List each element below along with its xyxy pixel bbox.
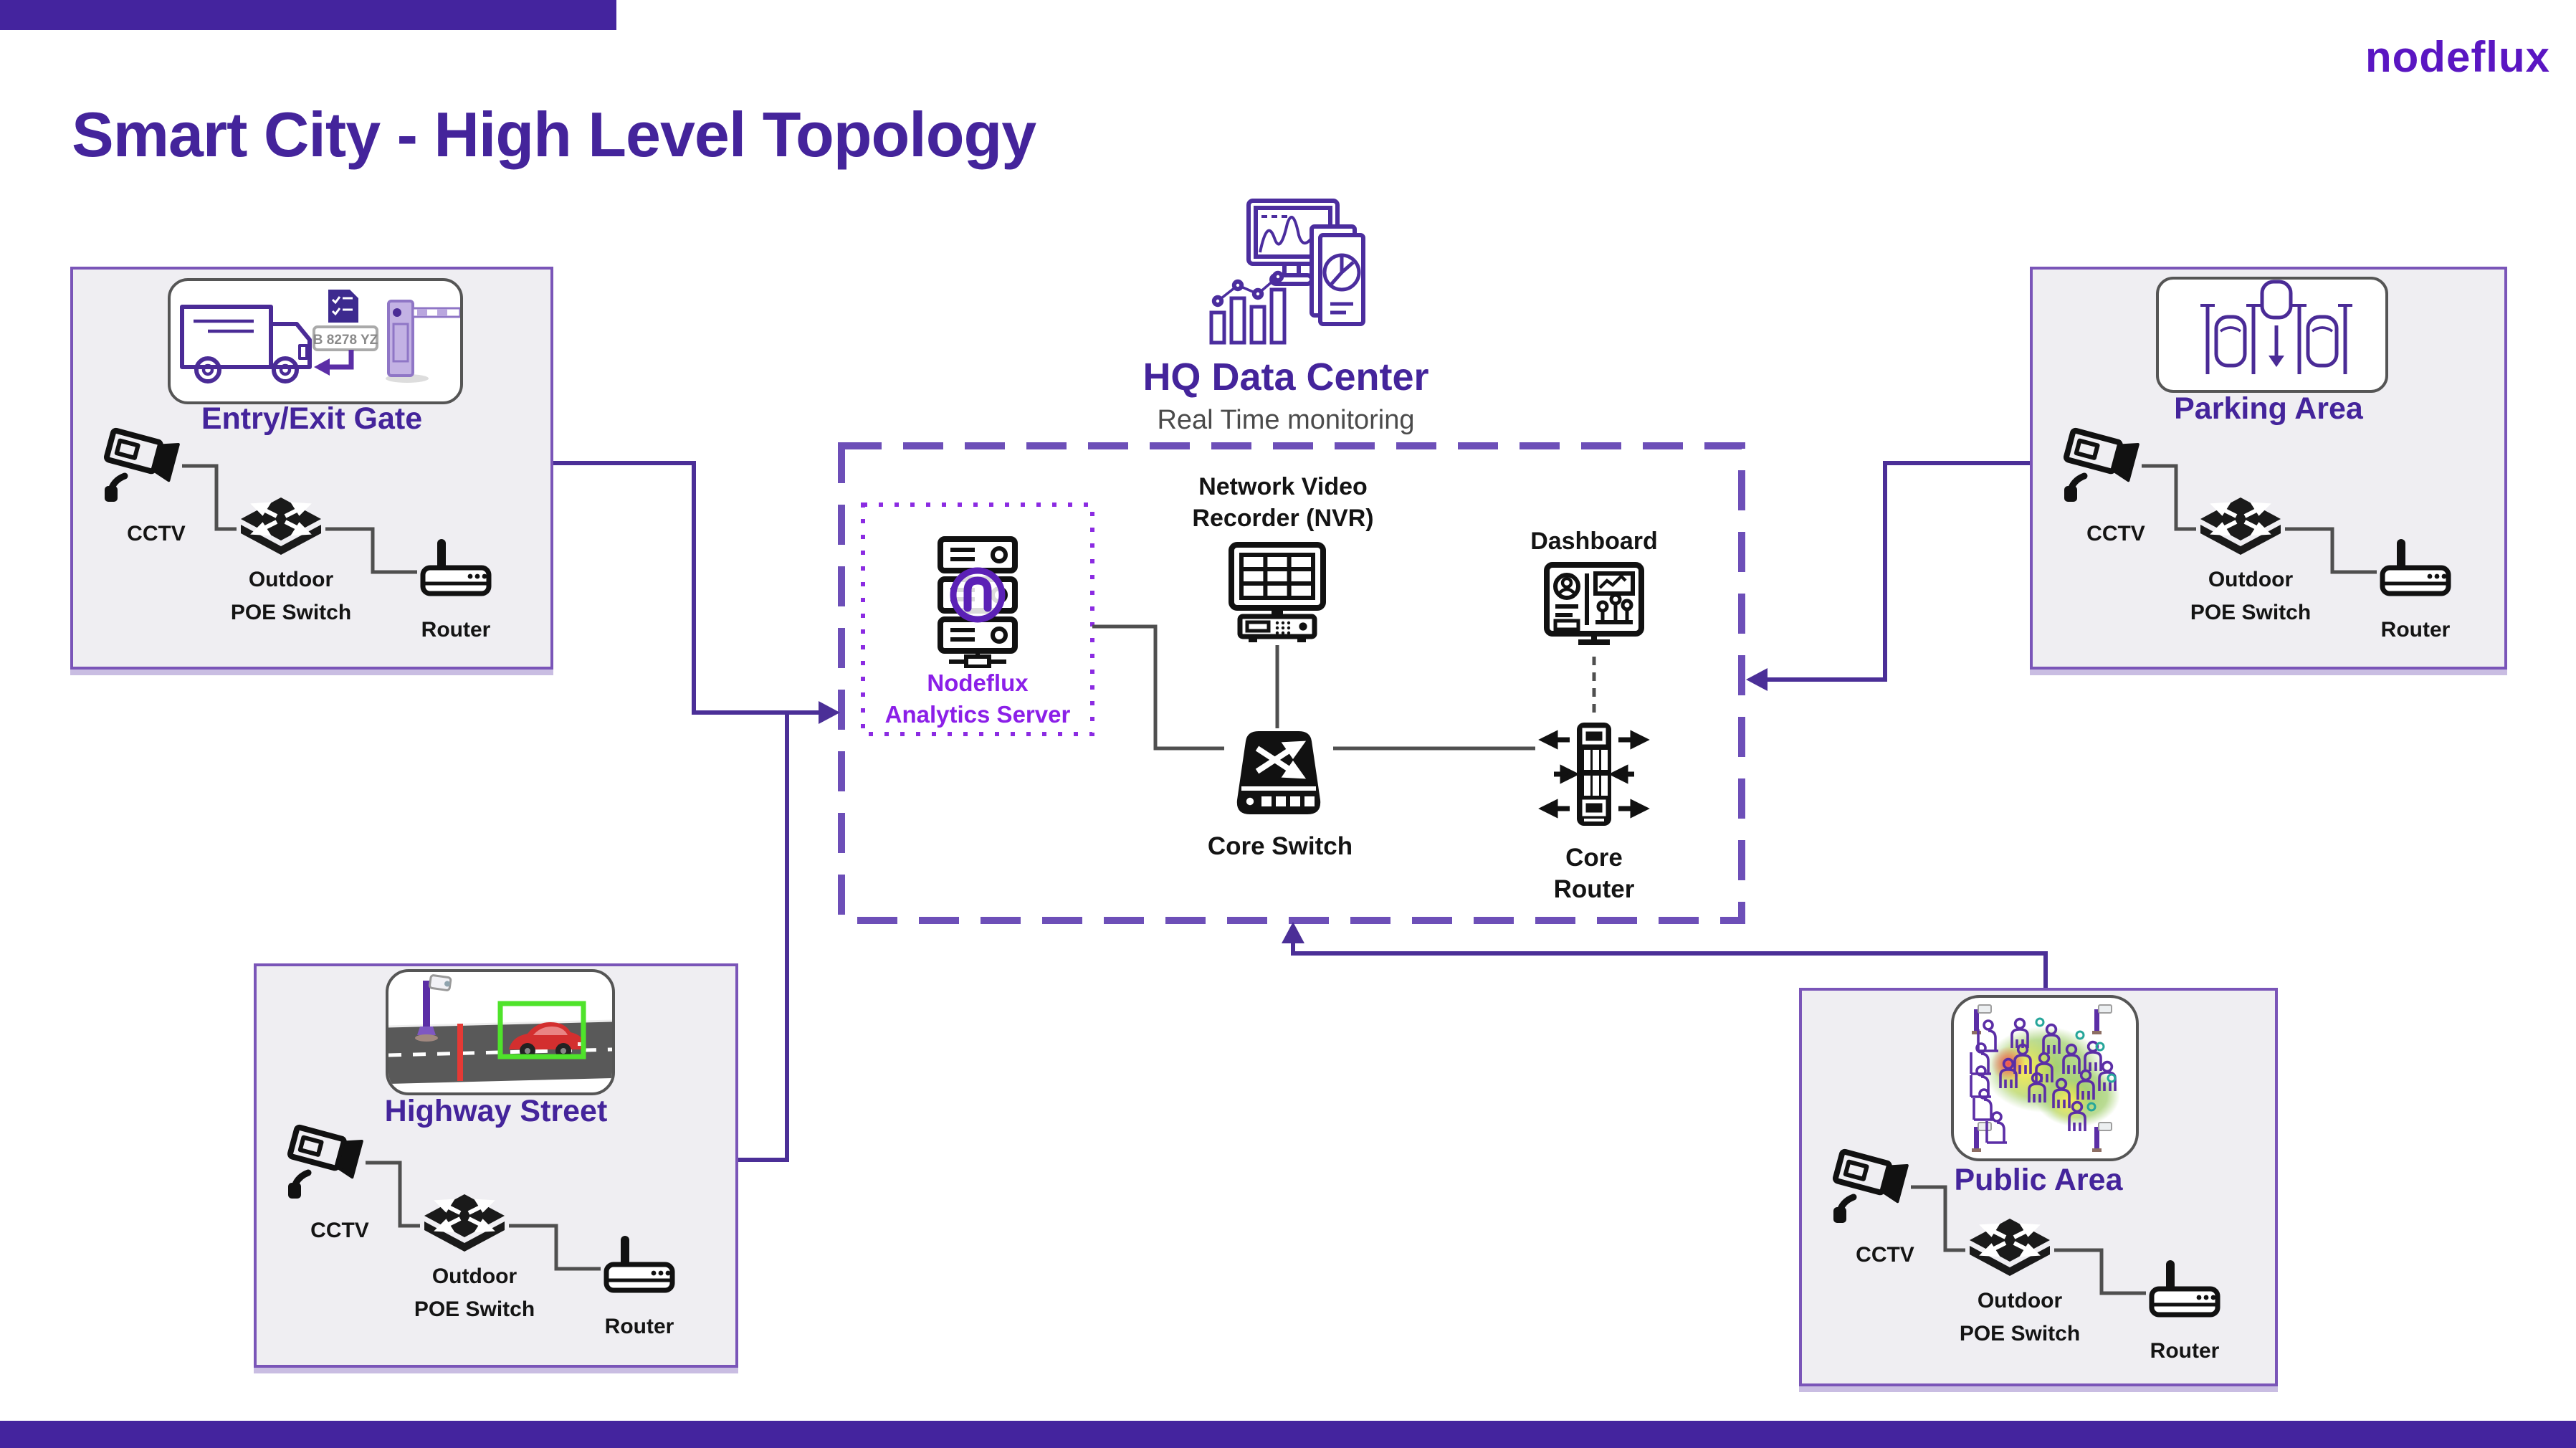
core-router-icon: [1538, 720, 1650, 829]
router-icon: [419, 538, 493, 601]
poe-switch-label-line2: POE Switch: [1919, 1322, 2120, 1346]
cctv-icon: [1831, 1148, 1914, 1223]
dashboard-label: Dashboard: [1479, 528, 1709, 556]
poe-switch-label-line2: POE Switch: [191, 601, 391, 625]
dashboard-icon: [1541, 562, 1647, 651]
router-label: Router: [399, 618, 513, 642]
nvr-label-line2: Recorder (NVR): [1125, 505, 1441, 533]
poe-switch-icon: [1967, 1217, 2053, 1283]
poe-switch-icon: [421, 1193, 507, 1259]
hq-data-center-icon: [1208, 198, 1366, 347]
cctv-label: CCTV: [99, 522, 214, 546]
site-parking-area: Parking Area CCTV Outdoor POE Switch Rou…: [2030, 267, 2507, 670]
site-highway-street: Highway Street CCTV Outdoor POE Switch R…: [254, 963, 738, 1368]
cctv-label: CCTV: [2059, 522, 2173, 546]
smart-city-topology: nodeflux Smart City - High Level Topolog…: [0, 0, 2576, 1448]
router-icon: [602, 1234, 677, 1297]
core-router-label-line2: Router: [1494, 875, 1694, 905]
poe-switch-label-line2: POE Switch: [374, 1297, 575, 1322]
cctv-label: CCTV: [282, 1219, 397, 1243]
router-icon: [2147, 1259, 2222, 1322]
analytics-server-label-line2: Analytics Server: [863, 702, 1092, 730]
nvr-icon: [1223, 542, 1332, 642]
hq-title: HQ Data Center: [1071, 356, 1501, 400]
router-label: Router: [2358, 618, 2473, 642]
site-title: Parking Area: [2033, 391, 2504, 427]
cctv-icon: [2061, 427, 2145, 502]
poe-switch-label-line2: POE Switch: [2150, 601, 2351, 625]
poe-switch-label-line1: Outdoor: [374, 1264, 575, 1289]
analytics-server-icon: [932, 536, 1024, 668]
public-area-illustration: [1951, 995, 2139, 1161]
license-plate-text: B 8278 YZ: [313, 333, 378, 348]
hq-internal-wires: [1092, 627, 1594, 748]
poe-switch-label-line1: Outdoor: [2150, 568, 2351, 592]
analytics-server-label-line1: Nodeflux: [863, 671, 1092, 698]
poe-switch-icon: [2198, 496, 2284, 562]
router-icon: [2378, 538, 2453, 601]
parking-illustration: [2156, 277, 2388, 393]
cctv-icon: [102, 427, 185, 502]
core-switch-label: Core Switch: [1180, 832, 1380, 862]
nvr-label-line1: Network Video: [1125, 473, 1441, 502]
router-label: Router: [582, 1315, 697, 1339]
poe-switch-label-line1: Outdoor: [191, 568, 391, 592]
site-entry-exit-gate: B 8278 YZ Entry/Exit Gate CCTV Outdoor P…: [70, 267, 553, 670]
poe-switch-icon: [238, 496, 324, 562]
poe-switch-label-line1: Outdoor: [1919, 1289, 2120, 1313]
core-switch-icon: [1227, 728, 1330, 826]
cctv-label: CCTV: [1828, 1243, 1942, 1267]
hq-subtitle: Real Time monitoring: [1071, 406, 1501, 437]
core-router-label-line1: Core: [1494, 843, 1694, 873]
site-public-area: Public Area CCTV Outdoor POE Switch Rout…: [1799, 988, 2278, 1386]
router-label: Router: [2127, 1339, 2242, 1363]
entry-gate-illustration: B 8278 YZ: [168, 278, 463, 404]
highway-illustration: [386, 969, 615, 1095]
cctv-icon: [285, 1124, 368, 1199]
